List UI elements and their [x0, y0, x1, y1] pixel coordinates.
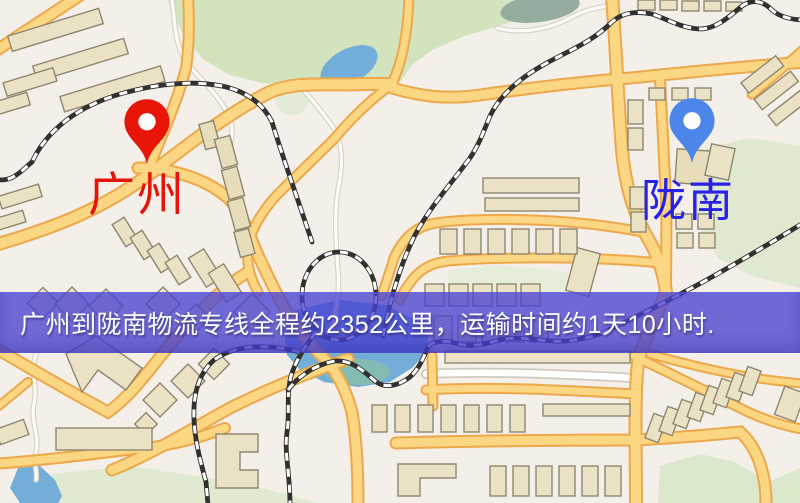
white-road — [426, 373, 634, 378]
map-image — [0, 0, 800, 503]
origin-red-pin-icon — [121, 98, 173, 168]
logistics-route-map: 广州 陇南 广州到陇南物流专线全程约2352公里，运输时间约1天10小时. — [0, 0, 800, 503]
origin-city-label: 广州 — [88, 172, 186, 219]
route-info-text: 广州到陇南物流专线全程约2352公里，运输时间约1天10小时. — [0, 305, 715, 341]
route-info-banner: 广州到陇南物流专线全程约2352公里，运输时间约1天10小时. — [0, 292, 800, 353]
destination-blue-pin-icon — [666, 97, 718, 167]
destination-city-label: 陇南 — [641, 178, 735, 223]
